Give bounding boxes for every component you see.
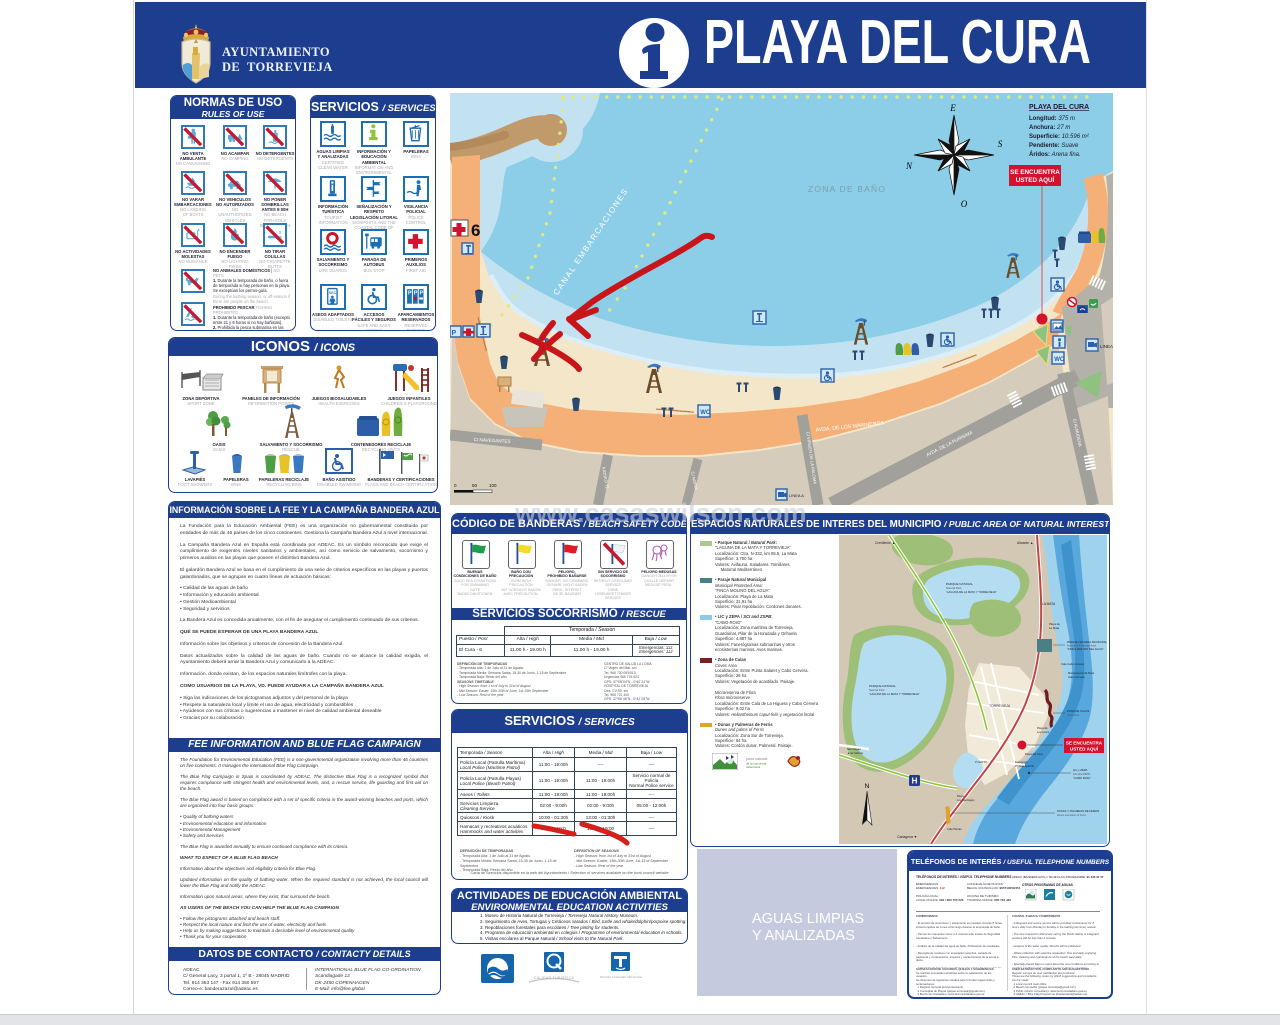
svg-text:6: 6 bbox=[471, 221, 480, 240]
svg-text:PUERTO: PUERTO bbox=[975, 760, 988, 764]
svg-text:N: N bbox=[865, 783, 870, 790]
svg-text:LINEA A: LINEA A bbox=[1100, 344, 1113, 349]
svg-text:La Mata: La Mata bbox=[1049, 626, 1060, 630]
svg-text:Los Locos: Los Locos bbox=[1037, 730, 1050, 734]
svg-text:P: P bbox=[414, 290, 418, 296]
svg-text:ZONA DE BAÑO: ZONA DE BAÑO bbox=[808, 184, 886, 194]
svg-text:H: H bbox=[912, 777, 918, 786]
svg-text:"FINCA MOLINO DEL AGUA": "FINCA MOLINO DEL AGUA" bbox=[1067, 647, 1104, 651]
svg-text:CALIDAD TURISTICA: CALIDAD TURISTICA bbox=[534, 976, 575, 980]
svg-text:Eras/gores: Eras/gores bbox=[1015, 760, 1028, 764]
svg-text:Superficie: 10.596 m²: Superficie: 10.596 m² bbox=[1029, 134, 1090, 140]
svg-text:"LAGUNA DE LA MATA Y TORREVIEJ: "LAGUNA DE LA MATA Y TORREVIEJA" bbox=[869, 692, 920, 696]
svg-text:O: O bbox=[961, 199, 968, 209]
svg-text:LA MATA: LA MATA bbox=[1042, 602, 1056, 606]
svg-text:WC: WC bbox=[700, 410, 711, 416]
svg-text:Los Naufragos: Los Naufragos bbox=[957, 798, 975, 802]
svg-text:WC: WC bbox=[1054, 357, 1065, 363]
svg-text:LIC y ZEPA: LIC y ZEPA bbox=[1073, 768, 1088, 772]
svg-text:Dunes and palms of Ferris: Dunes and palms of Ferris bbox=[1057, 814, 1087, 817]
svg-text:P: P bbox=[452, 330, 457, 337]
svg-text:◄ de Salinas: ◄ de Salinas bbox=[847, 751, 864, 755]
svg-text:Playa: Playa bbox=[957, 794, 964, 798]
svg-text:Cartagena ▼: Cartagena ▼ bbox=[897, 835, 917, 839]
svg-text:parcs naturals: parcs naturals bbox=[746, 757, 768, 761]
svg-text:Playa de: Playa de bbox=[1037, 726, 1048, 730]
svg-text:E: E bbox=[949, 103, 956, 113]
svg-text:Longitud: 375 m: Longitud: 375 m bbox=[1029, 116, 1075, 122]
svg-text:Microreserva de Flora: Microreserva de Flora bbox=[1068, 671, 1095, 675]
svg-text:Cabo Cervera: Cabo Cervera bbox=[1068, 675, 1085, 679]
svg-text:PARAJE NATURAL MUNICIPAL: PARAJE NATURAL MUNICIPAL bbox=[1067, 640, 1107, 644]
svg-text:PLAYA DEL CURA: PLAYA DEL CURA bbox=[1029, 104, 1089, 111]
svg-text:Alicante ▲: Alicante ▲ bbox=[1017, 541, 1033, 545]
svg-text:S: S bbox=[998, 139, 1003, 149]
svg-text:"CABO ROIG": "CABO ROIG" bbox=[1073, 776, 1091, 780]
svg-text:Cala Cabo Cervera: Cala Cabo Cervera bbox=[1061, 662, 1085, 666]
svg-text:N-332: N-332 bbox=[1038, 583, 1043, 591]
svg-text:Pendiente: Suave: Pendiente: Suave bbox=[1029, 143, 1079, 149]
svg-text:N: N bbox=[905, 161, 913, 171]
svg-text:USTED AQUÍ: USTED AQUÍ bbox=[1016, 175, 1055, 184]
svg-text:P: P bbox=[408, 290, 412, 296]
svg-text:Anchura: 27 m: Anchura: 27 m bbox=[1029, 125, 1070, 131]
svg-text:Playa del Cura: Playa del Cura bbox=[1025, 752, 1043, 756]
svg-text:Cove Area: Cove Area bbox=[1067, 713, 1080, 717]
svg-text:W.C: W.C bbox=[329, 291, 336, 295]
svg-text:USTED AQUÍ: USTED AQUÍ bbox=[1070, 745, 1099, 752]
svg-text:Cala Piteras: Cala Piteras bbox=[947, 827, 962, 831]
svg-text:San Miguel: San Miguel bbox=[847, 747, 861, 751]
svg-text:100: 100 bbox=[489, 483, 497, 488]
svg-text:SE ENCUENTRA: SE ENCUENTRA bbox=[1010, 169, 1060, 176]
svg-text:Crevillente ▲: Crevillente ▲ bbox=[875, 541, 895, 545]
svg-text:Pº Juan Aparicio: Pº Juan Aparicio bbox=[1015, 764, 1035, 768]
svg-text:"LAGUNA DE LA MATA Y TORREVIEJ: "LAGUNA DE LA MATA Y TORREVIEJA" bbox=[946, 590, 997, 594]
svg-text:TORREVIEJA: TORREVIEJA bbox=[989, 704, 1011, 708]
svg-text:DUNAS Y PALMERAS DE FERRIS: DUNAS Y PALMERAS DE FERRIS bbox=[1057, 809, 1099, 813]
svg-text:Turismo Comunitat Valenciana: Turismo Comunitat Valenciana bbox=[600, 975, 643, 979]
svg-text:ZONA DE CALAS: ZONA DE CALAS bbox=[1067, 709, 1089, 713]
svg-text:P: P bbox=[420, 290, 424, 296]
svg-text:valenciana: valenciana bbox=[746, 765, 761, 769]
svg-text:Áridos: Arena fina.: Áridos: Arena fina. bbox=[1029, 151, 1081, 158]
svg-text:50: 50 bbox=[472, 483, 478, 488]
svg-text:SE ENCUENTRA: SE ENCUENTRA bbox=[1066, 741, 1103, 746]
